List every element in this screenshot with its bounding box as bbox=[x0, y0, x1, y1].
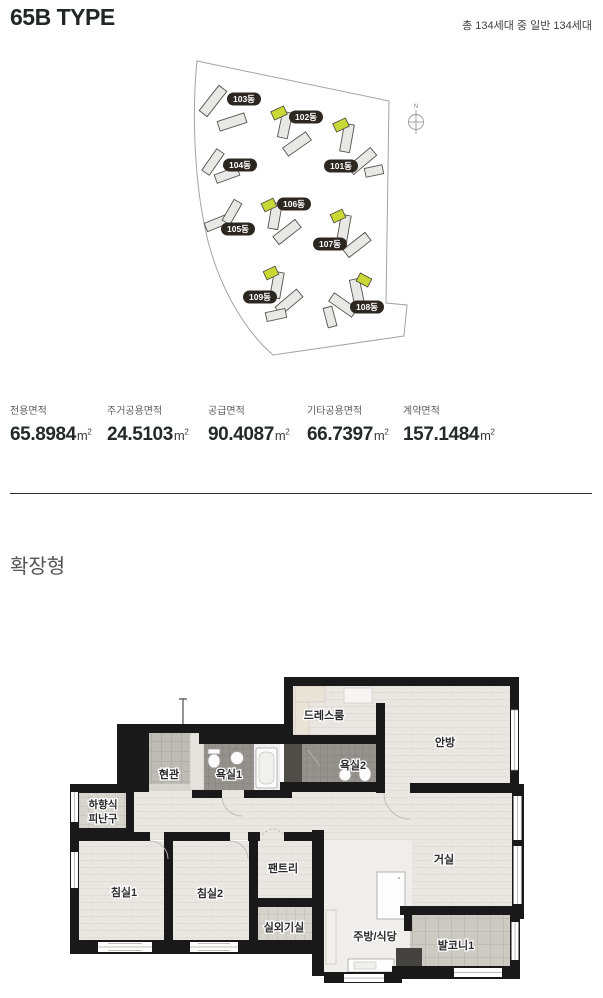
building-label-101: 101동 bbox=[330, 161, 352, 171]
label-living-room: 거실 bbox=[434, 852, 454, 866]
toilet1-icon bbox=[208, 754, 220, 768]
stat-contract-area: 계약면적 157.1484m2 bbox=[403, 402, 495, 446]
building-label-109: 109동 bbox=[249, 292, 271, 302]
stat-other-shared-area: 기타공용면적 66.7397m2 bbox=[307, 402, 388, 446]
label-evac-hatch-1: 하향식 bbox=[89, 798, 118, 811]
master-bedroom-floor bbox=[378, 686, 510, 785]
dressroom-dresser bbox=[344, 688, 372, 703]
stat-shared-residential-area: 주거공용면적 24.5103m2 bbox=[107, 402, 188, 446]
entrance-step bbox=[149, 784, 190, 791]
site-plan-map: 103동 102동 104동 101동 106동 105동 107동 109동 … bbox=[110, 58, 450, 370]
unit-count-note: 총 134세대 중 일반 134세대 bbox=[462, 17, 592, 33]
building-label-104: 104동 bbox=[229, 160, 251, 170]
label-entrance: 현관 bbox=[159, 767, 179, 781]
label-dressroom: 드레스룸 bbox=[304, 708, 344, 722]
building-label-108: 108동 bbox=[356, 302, 378, 312]
label-bedroom2: 침실2 bbox=[197, 886, 223, 900]
section-divider bbox=[10, 493, 592, 494]
label-ac-unit-room: 실외기실 bbox=[264, 920, 304, 934]
kitchen-counter bbox=[326, 910, 336, 964]
label-bathroom1: 욕실1 bbox=[216, 767, 242, 781]
building-103 bbox=[199, 85, 247, 131]
label-kitchen-dining: 주방/식당 bbox=[353, 929, 397, 943]
building-108 bbox=[323, 273, 372, 328]
section-heading: 확장형 bbox=[10, 550, 65, 579]
compass-icon: N bbox=[409, 104, 424, 134]
label-bathroom2: 욕실2 bbox=[340, 758, 366, 772]
building-label-106: 106동 bbox=[283, 199, 305, 209]
label-evac-hatch-2: 피난구 bbox=[89, 812, 118, 825]
building-label-107: 107동 bbox=[319, 239, 341, 249]
toilet1-tank bbox=[208, 749, 220, 754]
balcony-dark-shaft bbox=[396, 948, 422, 968]
label-master-bedroom: 안방 bbox=[435, 735, 455, 749]
floor-plan: 드레스룸 안방 현관 욕실1 욕실2 하향식 피난구 침실1 침실2 팬트리 거… bbox=[62, 672, 538, 992]
sink1-icon bbox=[231, 752, 244, 765]
svg-text:N: N bbox=[414, 104, 418, 110]
building-label-103: 103동 bbox=[233, 94, 255, 104]
dressroom-wardrobe-top bbox=[295, 686, 325, 702]
label-balcony1: 발코니1 bbox=[438, 938, 474, 952]
stat-exclusive-area: 전용면적 65.8984m2 bbox=[10, 402, 91, 446]
label-pantry: 팬트리 bbox=[268, 861, 298, 875]
building-label-105: 105동 bbox=[227, 224, 249, 234]
duct-shaft bbox=[284, 744, 302, 784]
page-title: 65B TYPE bbox=[10, 4, 115, 31]
area-stats: 전용면적 65.8984m2 주거공용면적 24.5103m2 공급면적 90.… bbox=[0, 402, 603, 462]
label-bedroom1: 침실1 bbox=[111, 885, 137, 899]
stat-supply-area: 공급면적 90.4087m2 bbox=[208, 402, 289, 446]
building-label-102: 102동 bbox=[295, 112, 317, 122]
